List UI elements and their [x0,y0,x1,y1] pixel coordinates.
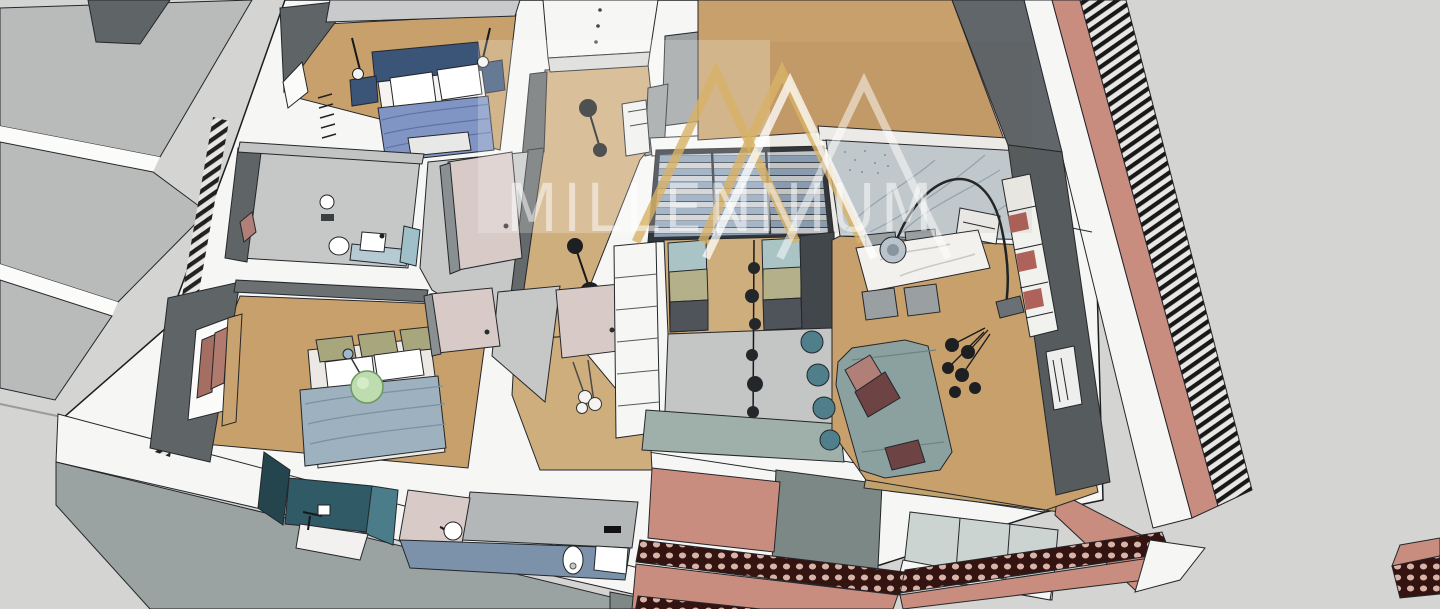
glass-door-left [668,240,708,332]
round-mirror-icon [320,195,334,209]
bathroom-cabinet [594,546,628,574]
bedroom2-door [430,288,500,353]
nightstand-left [350,76,378,106]
pillow [437,64,482,100]
wc-toilet [329,237,349,255]
pillow [374,349,424,381]
floorplan-render: MILLENNIUM [0,0,1440,609]
render-canvas: MILLENNIUM [0,0,1440,609]
watermark: MILLENNIUM [478,40,1032,258]
tray [321,214,334,221]
dining-chair [904,284,940,316]
bathroom-toilet [563,546,583,574]
bathroom-sink [444,522,462,540]
door-handle-icon [485,330,490,335]
dining-chair [862,288,898,320]
bathroom-wall [462,492,638,548]
olive-pillow [400,327,432,352]
cord-mount [343,349,353,359]
watermark-text: MILLENNIUM [506,170,938,247]
towel-slot [604,526,621,533]
door-handle-icon [610,328,615,333]
wc [225,142,424,268]
